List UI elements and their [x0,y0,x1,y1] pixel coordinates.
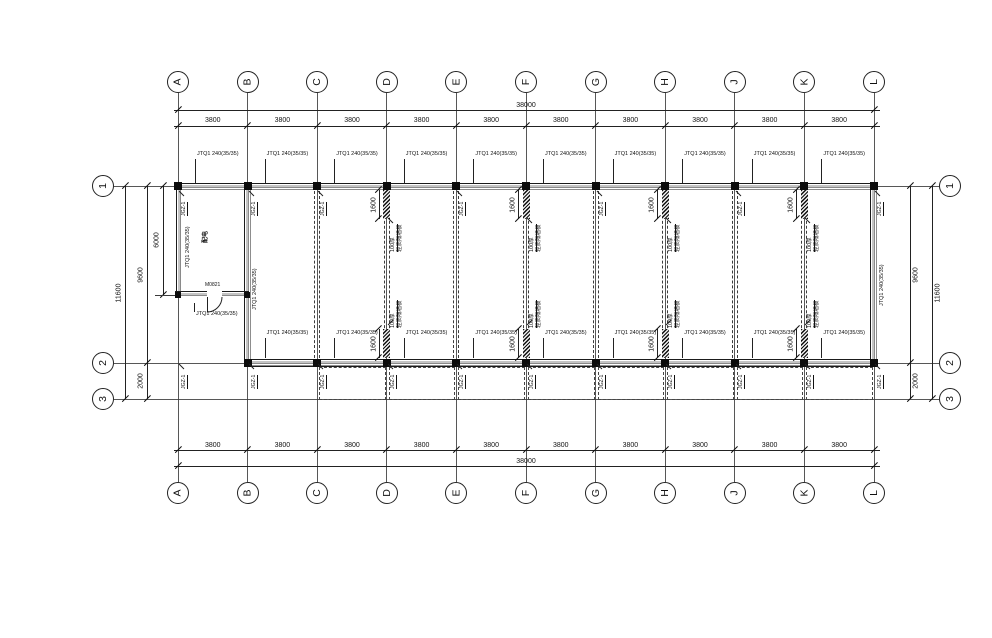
column-tag: JGZ-1 [600,202,606,216]
grid-bubble-left: 1 [92,175,114,197]
dim-text-total-left: 11600 [116,284,123,303]
wall-column-b [244,190,251,359]
grid-bubble-bottom: E [445,482,467,504]
dim-text-bay-top: 3800 [248,117,318,124]
dim-chain-line [932,186,933,399]
dim-text-bay-top: 3800 [387,117,457,124]
column-blob [522,182,530,190]
wall-label-bottom: JTQ1 240(35/35) [406,331,448,337]
grid-bubble-top: H [654,71,676,93]
wall-label-top: JTQ1 240(35/35) [545,152,587,158]
grid-bubble-bottom: L [863,482,885,504]
wall-label-top: JTQ1 240(35/35) [197,152,239,158]
dim-chain-line [147,186,148,399]
grid-bubble-top: E [445,71,467,93]
dim-text-bay-bottom: 3800 [317,442,387,449]
partition-hatch-strip [523,190,530,219]
dim-text-bay-top: 3800 [526,117,596,124]
column-blob [174,182,182,190]
column-blob [592,182,600,190]
column-blob [661,182,669,190]
wall-label-vertical-column-b: JTQ1 240(35/35) [253,268,259,310]
leader-line [179,364,185,370]
dim-text-room-depth: 6000 [154,232,161,248]
partition-strip-dim-text: 1600 [649,197,656,213]
dim-text-canopy-right: 2000 [913,373,920,389]
canopy-dashed-outline [389,367,456,400]
column-tag: JGZ-1 [182,202,188,216]
partition-strip-dim-line [518,329,519,358]
grid-line-vertical [804,93,805,482]
axis-bubble-label: 3 [944,396,956,402]
axis-bubble-label: F [520,79,532,85]
grid-bubble-top: K [793,71,815,93]
wall-label-top: JTQ1 240(35/35) [615,152,657,158]
leader-line [194,303,195,312]
wall-label-top: JTQ1 240(35/35) [754,152,796,158]
partition-hatch-strip [383,190,390,219]
partition-strip-dim-text: 1600 [370,336,377,352]
partition-note-line2: 轻质隔墙板 [676,224,682,252]
partition-dashed-line [314,191,315,358]
grid-bubble-top: G [585,71,607,93]
dim-line-bays-top [174,126,880,127]
axis-bubble-label: F [520,490,532,496]
column-tag: JGZ-1 [460,202,466,216]
leader-line [265,338,266,358]
leader-line [334,338,335,358]
wall-label-vertical-right: JTQ1 240(35/35) [880,264,886,306]
canopy-dashed-outline [598,367,665,400]
wall-bottom [244,359,877,367]
dim-text-bay-top: 3800 [178,117,248,124]
grid-bubble-top: A [167,71,189,93]
grid-line-vertical [456,93,457,482]
axis-bubble-label: J [729,79,741,84]
wall-label-vertical-room-left: JTQ1 240(35/35) [186,226,192,268]
axis-bubble-label: E [450,78,462,85]
canopy-dashed-outline [806,367,873,400]
canopy-dashed-outline [737,367,804,400]
dim-text-bay-top: 3800 [804,117,874,124]
canopy-dashed-outline [319,367,386,400]
grid-bubble-right: 3 [939,388,961,410]
dim-tick [793,215,800,222]
axis-bubble-label: A [172,78,184,85]
partition-strip-dim-text: 1600 [649,336,656,352]
axis-bubble-label: J [729,490,741,495]
dim-line-bays-bottom [174,450,880,451]
partition-strip-dim-text: 1600 [788,197,795,213]
partition-hatch-strip [801,329,808,358]
axis-bubble-label: L [868,79,880,85]
leader-line [473,338,474,358]
partition-dashed-line [458,191,459,358]
axis-bubble-label: B [242,489,254,496]
axis-bubble-label: H [659,78,671,86]
partition-note-line2: 轻质隔墙板 [537,300,543,328]
axis-bubble-label: D [381,489,393,497]
axis-bubble-label: 3 [97,396,109,402]
dim-text-main-left: 9600 [138,267,145,283]
dim-text-bay-top: 3800 [665,117,735,124]
dim-text-bay-bottom: 3800 [248,442,318,449]
door-swing-arc [0,0,992,638]
column-blob [244,182,252,190]
leader-line [473,159,474,183]
grid-bubble-bottom: K [793,482,815,504]
column-tag: JGZ-1 [252,202,258,216]
dim-text-bay-bottom: 3800 [804,442,874,449]
dim-line-total-bottom [174,466,880,467]
axis-bubble-label: K [798,78,810,85]
partition-dashed-line [737,191,738,358]
dim-text-bay-top: 3800 [456,117,526,124]
wall-label-bottom: JTQ1 240(35/35) [684,331,726,337]
canopy-dashed-outline [528,367,595,400]
wall-label-bottom: JTQ1 240(35/35) [475,331,517,337]
column-tag: JGZ-1 [739,202,745,216]
room-bottom-wall-label: JTQ1 240(35/35) [196,312,238,318]
column-blob [452,182,460,190]
column-tag: JGZ-1 [321,202,327,216]
grid-bubble-top: B [237,71,259,93]
grid-line-vertical [734,93,735,482]
partition-note-line2: 轻质隔墙板 [815,224,821,252]
dim-text-bay-bottom: 3800 [665,442,735,449]
partition-hatch-strip [662,329,669,358]
grid-bubble-top: D [376,71,398,93]
dim-text-bay-bottom: 3800 [178,442,248,449]
leader-line [821,159,822,183]
dim-text-bay-bottom: 3800 [735,442,805,449]
leader-line [543,159,544,183]
partition-hatch-strip [523,329,530,358]
partition-note: 100厚轻质隔墙板 [669,224,682,252]
leader-line [265,159,266,183]
canopy-dashed-outline [667,367,734,400]
column-blob [244,292,250,298]
axis-bubble-label: 1 [944,183,956,189]
partition-hatch-strip [801,190,808,219]
column-blob [313,182,321,190]
partition-strip-dim-line [657,329,658,358]
grid-bubble-right: 1 [939,175,961,197]
wall-label-bottom: JTQ1 240(35/35) [267,331,309,337]
leader-line [613,159,614,183]
grid-bubble-top: J [724,71,746,93]
axis-bubble-label: H [659,489,671,497]
grid-bubble-bottom: J [724,482,746,504]
grid-bubble-left: 2 [92,352,114,374]
leader-line [195,159,196,183]
partition-strip-dim-line [518,190,519,219]
partition-hatch-strip [383,329,390,358]
dim-text-bay-top: 3800 [596,117,666,124]
partition-note: 100厚轻质隔墙板 [530,224,543,252]
leader-line [404,159,405,183]
grid-line-vertical [386,93,387,482]
leader-line [752,338,753,358]
grid-bubble-bottom: F [515,482,537,504]
column-blob [800,182,808,190]
door-tag: M0821 [205,283,220,288]
dim-tick [654,215,661,222]
wall-label-top: JTQ1 240(35/35) [406,152,448,158]
grid-bubble-top: C [306,71,328,93]
axis-bubble-label: B [242,78,254,85]
grid-bubble-bottom: D [376,482,398,504]
dim-text-bay-bottom: 3800 [526,442,596,449]
dim-extension-line [155,295,177,296]
partition-dashed-line [319,191,320,358]
partition-dashed-line [453,191,454,358]
partition-dashed-line [598,191,599,358]
column-tag: JGZ-1 [878,202,884,216]
wall-label-top: JTQ1 240(35/35) [336,152,378,158]
leader-line [682,338,683,358]
column-tag: JGZ-1 [182,375,188,389]
dim-chain-line [125,186,126,399]
leader-line [752,159,753,183]
grid-bubble-bottom: B [237,482,259,504]
axis-bubble-label: G [590,489,602,497]
column-blob [383,182,391,190]
door-leaf [207,297,208,312]
canopy-dashed-outline [458,367,525,400]
grid-bubble-right: 2 [939,352,961,374]
column-tag: JGZ-1 [252,375,258,389]
partition-strip-dim-text: 1600 [510,336,517,352]
partition-dashed-line [732,191,733,358]
partition-dashed-line [593,191,594,358]
dim-text-bay-bottom: 3800 [596,442,666,449]
dim-text-total-top: 38000 [178,102,874,109]
partition-note: 100厚轻质隔墙板 [391,224,404,252]
grid-bubble-bottom: C [306,482,328,504]
leader-line [821,338,822,358]
partition-strip-dim-text: 1600 [510,197,517,213]
partition-note-line2: 轻质隔墙板 [398,300,404,328]
partition-note-line2: 轻质隔墙板 [676,300,682,328]
partition-strip-dim-line [796,190,797,219]
wall-label-bottom: JTQ1 240(35/35) [615,331,657,337]
axis-bubble-label: K [798,489,810,496]
grid-bubble-bottom: A [167,482,189,504]
dim-chain-line [163,186,164,295]
leader-line [334,159,335,183]
wall-label-top: JTQ1 240(35/35) [475,152,517,158]
grid-line-vertical [526,93,527,482]
floor-plan-canvas: AABBCCDDEEFFGGHHJJKKLL112233380003800038… [0,0,992,638]
leader-line [404,338,405,358]
partition-note: 100厚轻质隔墙板 [808,300,821,328]
dim-text-bay-top: 3800 [317,117,387,124]
axis-bubble-label: L [868,490,880,496]
grid-bubble-left: 3 [92,388,114,410]
dim-text-total-bottom: 38000 [178,458,874,465]
axis-bubble-label: C [311,78,323,86]
wall-label-bottom: JTQ1 240(35/35) [545,331,587,337]
dim-text-total-right: 11600 [935,284,942,303]
dim-text-bay-top: 3800 [735,117,805,124]
partition-strip-dim-line [657,190,658,219]
wall-label-bottom: JTQ1 240(35/35) [754,331,796,337]
axis-bubble-label: E [450,489,462,496]
grid-bubble-bottom: G [585,482,607,504]
axis-bubble-label: G [590,78,602,86]
column-blob [731,182,739,190]
column-blob [175,292,181,298]
grid-line-vertical [317,93,318,482]
wall-label-bottom: JTQ1 240(35/35) [823,331,865,337]
leader-line [682,159,683,183]
wall-label-top: JTQ1 240(35/35) [823,152,865,158]
partition-note-line2: 轻质隔墙板 [537,224,543,252]
column-tag: JGZ-1 [878,375,884,389]
dim-text-main-right: 9600 [913,267,920,283]
dim-text-bay-bottom: 3800 [387,442,457,449]
wall-label-bottom: JTQ1 240(35/35) [336,331,378,337]
partition-note-line2: 轻质隔墙板 [398,224,404,252]
dim-line-total-top [174,110,880,111]
axis-bubble-label: 2 [97,360,109,366]
dim-tick [375,215,382,222]
partition-strip-dim-text: 1600 [788,336,795,352]
partition-hatch-strip [662,190,669,219]
wall-label-top: JTQ1 240(35/35) [267,152,309,158]
grid-line-vertical [665,93,666,482]
axis-bubble-label: A [172,489,184,496]
partition-strip-dim-line [796,329,797,358]
axis-bubble-label: C [311,489,323,497]
grid-bubble-bottom: H [654,482,676,504]
wall-label-top: JTQ1 240(35/35) [684,152,726,158]
axis-bubble-label: D [381,78,393,86]
partition-strip-dim-text: 1600 [370,197,377,213]
dim-chain-line [910,186,911,399]
dim-tick [514,215,521,222]
axis-bubble-label: 2 [944,360,956,366]
dim-text-bay-bottom: 3800 [456,442,526,449]
leader-line [613,338,614,358]
partition-note: 100厚轻质隔墙板 [391,300,404,328]
column-blob [870,182,878,190]
partition-note: 100厚轻质隔墙板 [808,224,821,252]
partition-note-line2: 轻质隔墙板 [815,300,821,328]
partition-note: 100厚轻质隔墙板 [669,300,682,328]
dim-text-canopy-left: 2000 [138,373,145,389]
grid-bubble-top: L [863,71,885,93]
grid-line-vertical [595,93,596,482]
leader-line [543,338,544,358]
axis-bubble-label: 1 [97,183,109,189]
room-name-label: 配电 [203,231,209,243]
partition-note: 100厚轻质隔墙板 [530,300,543,328]
grid-bubble-top: F [515,71,537,93]
